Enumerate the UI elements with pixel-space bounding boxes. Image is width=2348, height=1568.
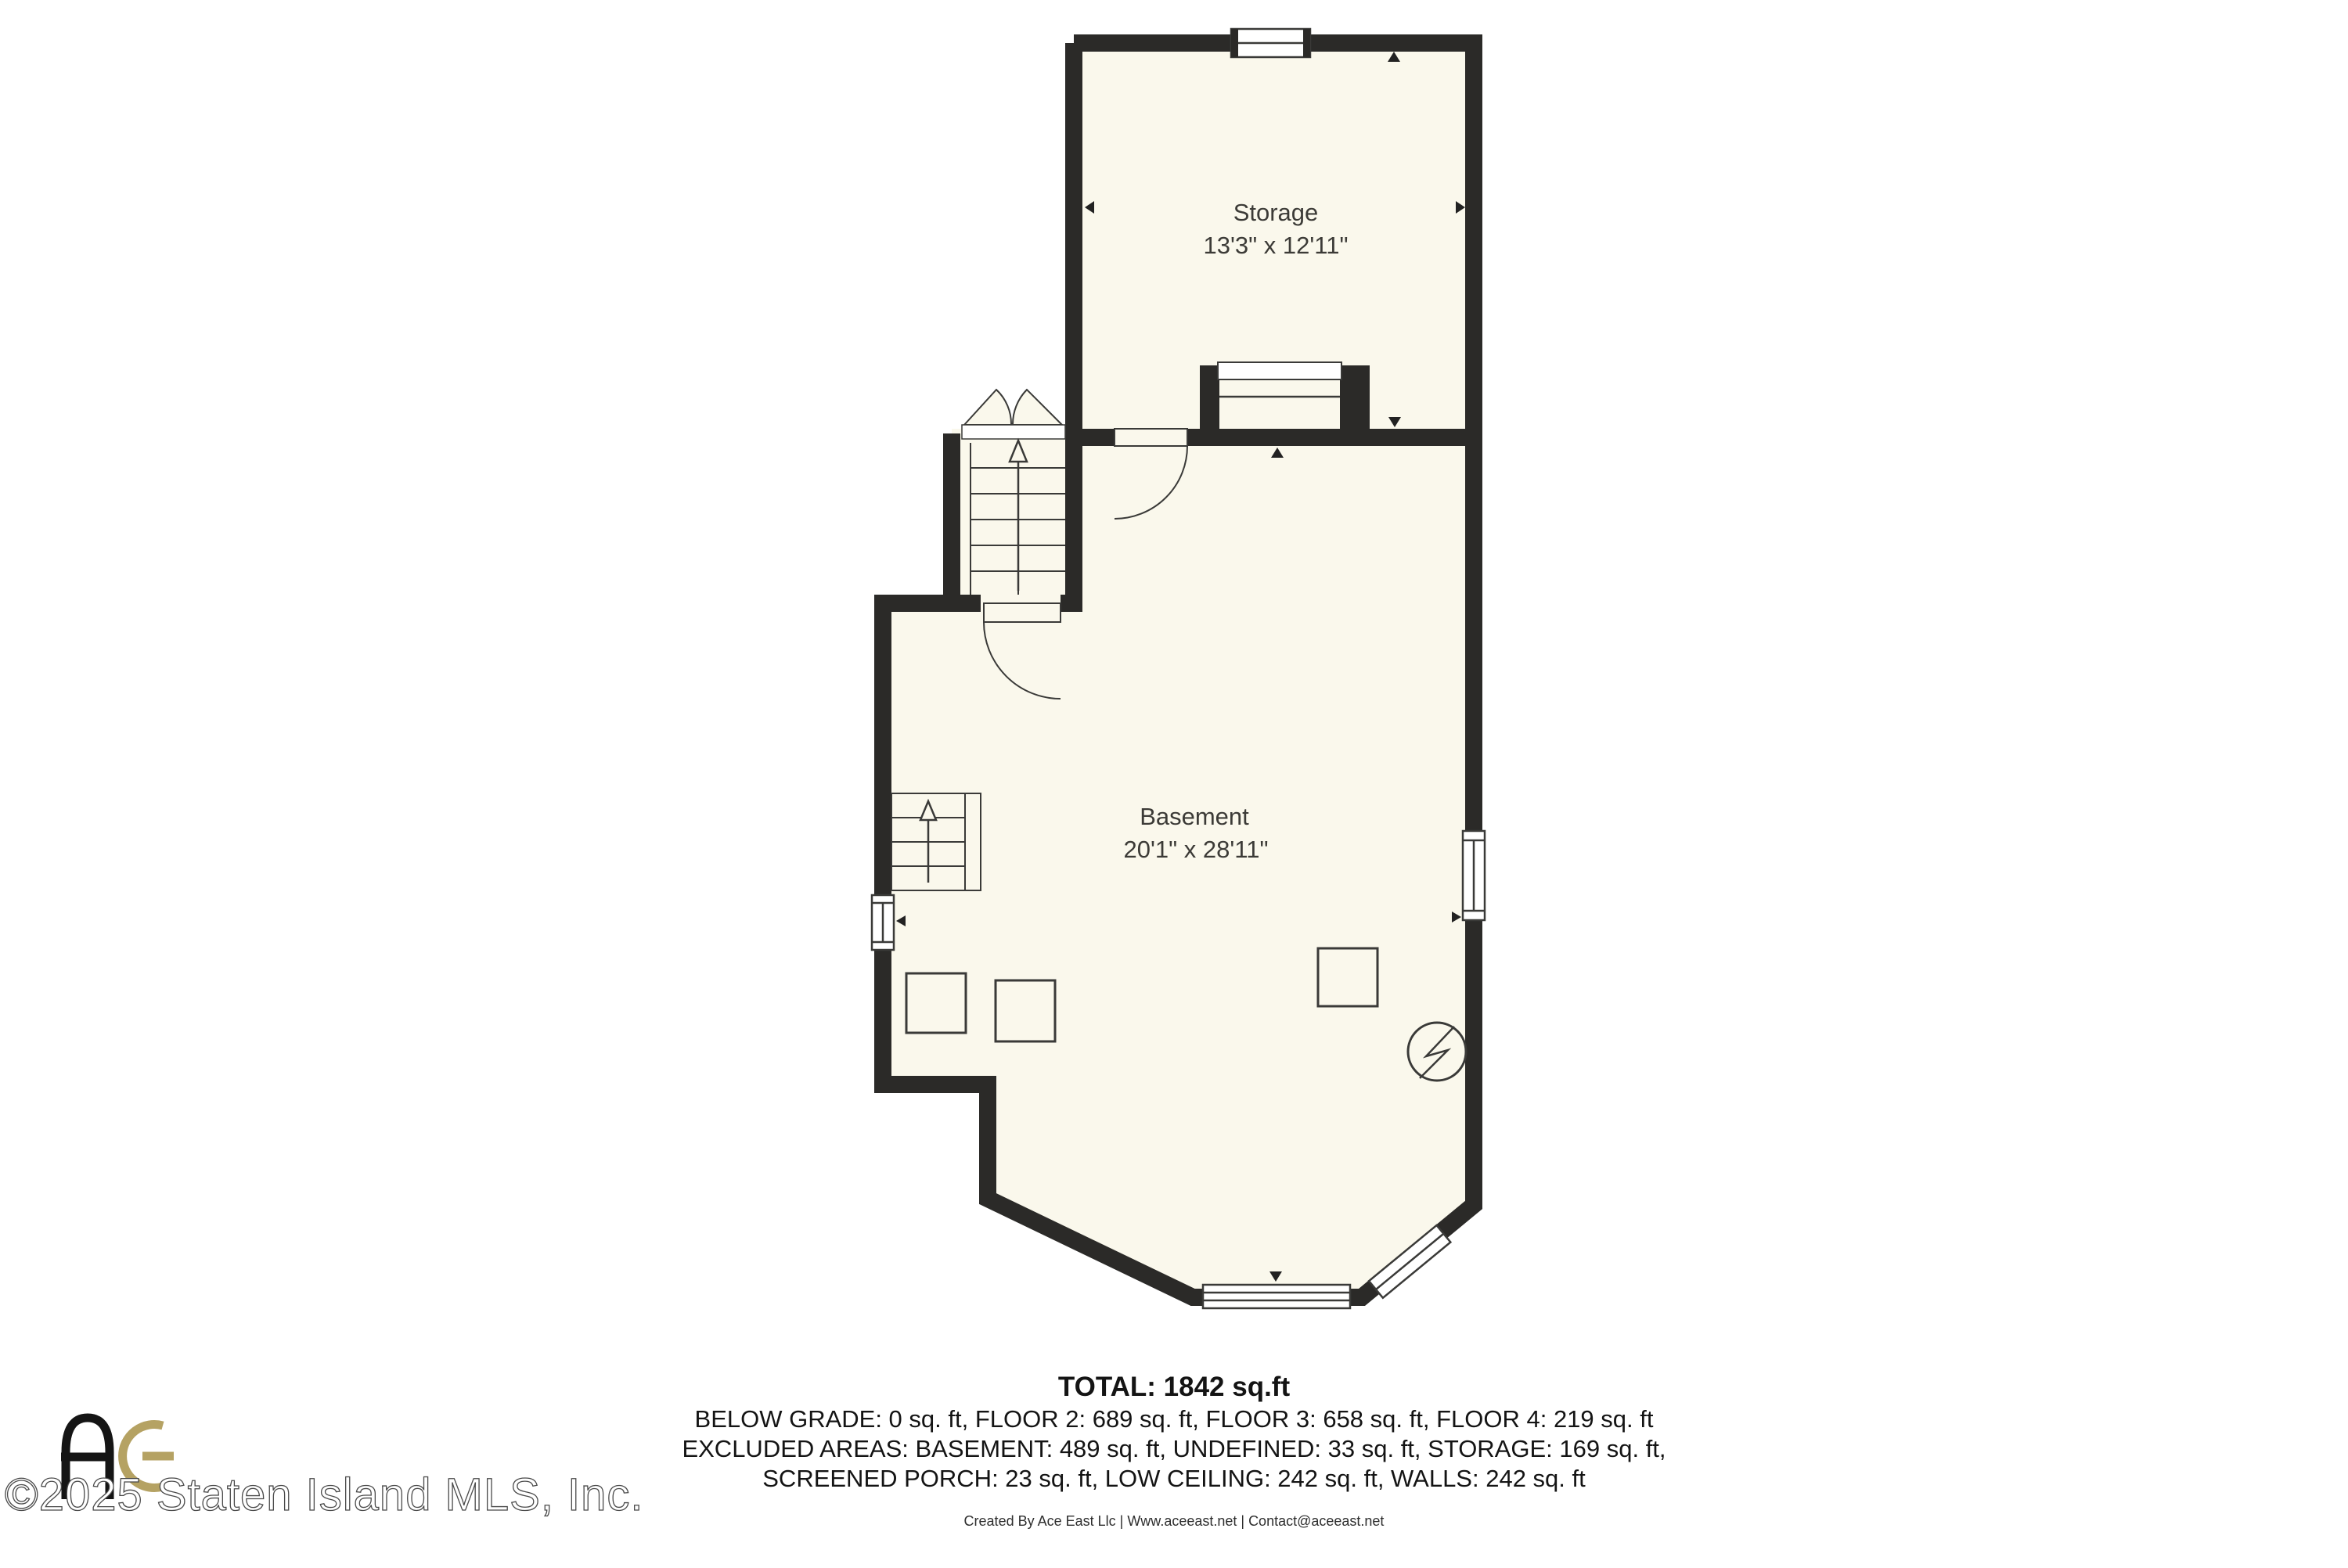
window-well-left-post bbox=[1200, 365, 1219, 432]
double-door-right-leaf bbox=[1013, 390, 1062, 425]
summary-line-2: EXCLUDED AREAS: BASEMENT: 489 sq. ft, UN… bbox=[682, 1435, 1666, 1462]
basement-left-window bbox=[872, 895, 894, 950]
floor-plan-page: Storage 13'3" x 12'11" Basement 20'1" x … bbox=[0, 0, 2348, 1564]
area-summary: TOTAL: 1842 sq.ft BELOW GRADE: 0 sq. ft,… bbox=[682, 1372, 1666, 1529]
basement-right-window bbox=[1463, 831, 1485, 920]
stair-top-double-doors bbox=[964, 390, 1062, 425]
storage-room-dimensions: 13'3" x 12'11" bbox=[1204, 232, 1349, 259]
summary-line-1: BELOW GRADE: 0 sq. ft, FLOOR 2: 689 sq. … bbox=[695, 1405, 1654, 1433]
basement-room-name: Basement bbox=[1140, 803, 1249, 830]
total-area-text: TOTAL: 1842 sq.ft bbox=[1058, 1372, 1291, 1402]
basement-room-dimensions: 20'1" x 28'11" bbox=[1124, 836, 1269, 863]
floor-plan-canvas: Storage 13'3" x 12'11" Basement 20'1" x … bbox=[0, 0, 2348, 1564]
credit-footer: Created By Ace East Llc | Www.aceeast.ne… bbox=[964, 1513, 1385, 1529]
window-well-right-post bbox=[1340, 365, 1370, 432]
copyright-watermark: ©2025 Staten Island MLS, Inc. bbox=[5, 1469, 644, 1520]
double-door-left-leaf bbox=[964, 390, 1011, 425]
bay-bottom-window bbox=[1203, 1285, 1350, 1308]
floor-fills bbox=[883, 43, 1474, 1297]
summary-line-3: SCREENED PORCH: 23 sq. ft, LOW CEILING: … bbox=[762, 1465, 1586, 1492]
well-window bbox=[1218, 362, 1341, 379]
basement-side-stairs bbox=[891, 793, 981, 890]
watermark: ©2025 Staten Island MLS, Inc. bbox=[5, 1418, 644, 1520]
storage-room-name: Storage bbox=[1233, 199, 1319, 226]
storage-top-window bbox=[1231, 29, 1310, 57]
stair-landing bbox=[962, 425, 1065, 439]
